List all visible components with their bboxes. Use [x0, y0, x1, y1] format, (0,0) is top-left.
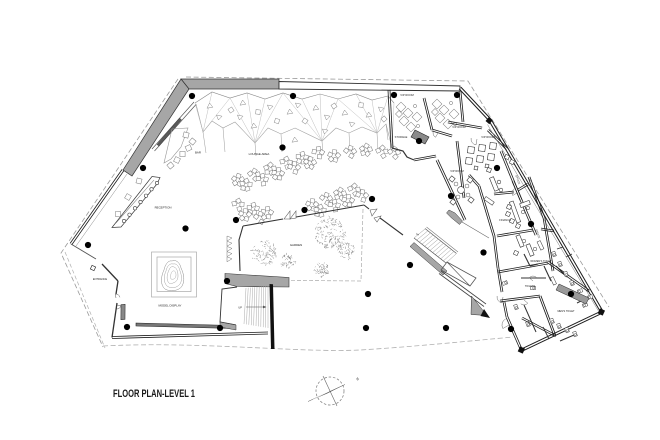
svg-text:RECEPTION: RECEPTION [155, 206, 172, 210]
svg-text:ENTRANCE: ENTRANCE [93, 277, 108, 281]
svg-text:FINANCE: FINANCE [499, 218, 511, 222]
svg-text:VIP ROOM: VIP ROOM [400, 93, 414, 97]
svg-text:GARDEN: GARDEN [290, 243, 302, 247]
svg-text:FLOOR PLAN-LEVEL 1: FLOOR PLAN-LEVEL 1 [113, 388, 195, 400]
svg-text:MODEL DISPLAY: MODEL DISPLAY [159, 304, 182, 308]
svg-text:VIP ROOM: VIP ROOM [450, 169, 464, 173]
svg-text:BAR: BAR [195, 151, 201, 155]
svg-text:VIP ROOM: VIP ROOM [481, 135, 495, 139]
svg-text:MEN'S TOILET: MEN'S TOILET [557, 310, 575, 313]
svg-text:UP: UP [238, 306, 242, 310]
svg-text:TOILETS: TOILETS [525, 285, 536, 288]
svg-text:WOMEN'S TOILET: WOMEN'S TOILET [530, 260, 552, 263]
svg-text:STORAGE: STORAGE [395, 135, 408, 139]
svg-text:LOUNGE AREA: LOUNGE AREA [249, 152, 270, 156]
